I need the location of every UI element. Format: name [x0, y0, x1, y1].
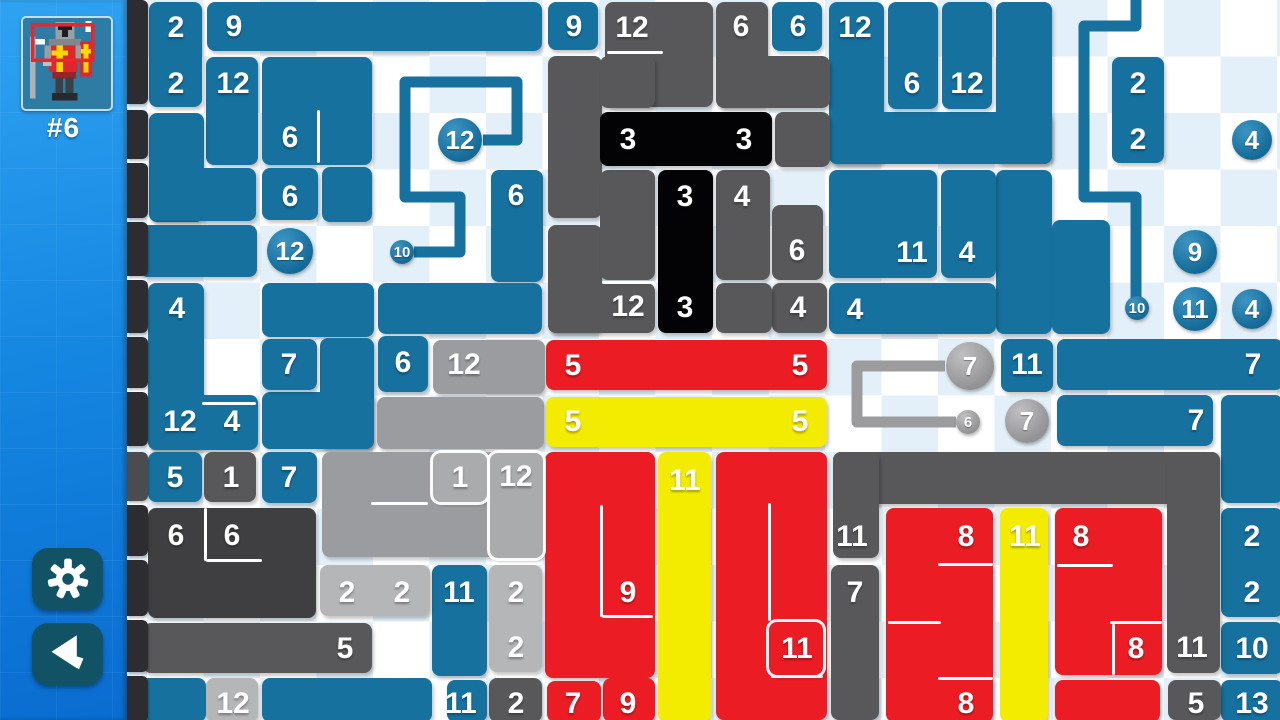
piece-6-6-snake[interactable]	[378, 283, 542, 334]
piece-number: 11	[669, 466, 701, 496]
edge-piece	[127, 392, 148, 446]
piece-number: 4	[169, 294, 186, 324]
back-button[interactable]	[32, 623, 103, 685]
piece-number: 7	[1245, 350, 1262, 380]
piece-number: 7	[281, 350, 298, 380]
piece-number: 3	[620, 125, 637, 155]
piece-number: 6	[168, 521, 185, 551]
piece-groove	[206, 559, 262, 562]
edge-piece	[127, 222, 148, 276]
piece-12-snake[interactable]	[377, 397, 544, 449]
piece-number: 6	[395, 348, 412, 378]
piece-groove	[938, 563, 993, 566]
piece-number: 6	[790, 12, 807, 42]
piece-number: 5	[565, 407, 582, 437]
piece-number: 6	[224, 521, 241, 551]
piece-number: 2	[339, 578, 356, 608]
piece-mass[interactable]	[262, 392, 374, 449]
node-circle[interactable]: 7	[946, 342, 994, 390]
node-circle[interactable]: 10	[390, 240, 414, 264]
piece-number: 8	[958, 522, 975, 552]
piece-number: 6	[508, 181, 525, 211]
edge-piece	[127, 505, 148, 556]
piece-number: 2	[1244, 578, 1261, 608]
piece-number: 2	[1130, 69, 1147, 99]
piece-number: 4	[790, 293, 807, 323]
piece-number: 11	[1176, 633, 1208, 663]
piece-number: 2	[1130, 125, 1147, 155]
edge-piece	[127, 337, 148, 388]
piece-number: 8	[958, 689, 975, 719]
node-circle[interactable]: 4	[1232, 289, 1272, 329]
piece-col-gray[interactable]	[548, 56, 602, 218]
piece-groove	[602, 615, 653, 618]
node-circle[interactable]: 4	[1232, 120, 1272, 160]
piece-groove	[1057, 564, 1113, 567]
piece-groove	[204, 508, 207, 561]
piece-groove	[607, 51, 663, 54]
piece-6-snake[interactable]	[322, 167, 372, 222]
edge-piece	[127, 676, 148, 720]
node-circle[interactable]: 9	[1173, 230, 1217, 274]
piece-number: 6	[733, 12, 750, 42]
piece-gray-c[interactable]	[775, 112, 830, 167]
node-circle[interactable]: 6	[956, 410, 980, 434]
piece-number: 9	[566, 12, 583, 42]
piece-number: 7	[281, 463, 298, 493]
piece-number: 2	[1244, 522, 1261, 552]
edge-piece	[127, 560, 148, 616]
piece-number: 3	[736, 125, 753, 155]
piece-8-block2[interactable]	[1055, 508, 1162, 675]
piece-number: 11	[896, 238, 928, 268]
piece-4-gray2[interactable]	[716, 283, 772, 333]
piece-number: 6	[904, 69, 921, 99]
piece-number: 2	[508, 578, 525, 608]
piece-number: 12	[447, 350, 480, 380]
node-circle[interactable]: 7	[1005, 399, 1049, 443]
piece-l-left[interactable]	[149, 168, 256, 221]
node-circle[interactable]: 10	[1125, 296, 1149, 320]
piece-number: 12	[838, 13, 871, 43]
piece-mass[interactable]	[262, 283, 374, 337]
piece-8-block2[interactable]	[1055, 680, 1160, 720]
sidebar: #6	[0, 0, 127, 720]
piece-number: 1	[223, 463, 240, 493]
piece-5-5-yellow[interactable]	[546, 397, 827, 447]
piece-number: 12	[499, 462, 532, 492]
piece-number: 4	[734, 182, 751, 212]
piece-groove	[768, 503, 771, 621]
piece-number: 11	[1011, 350, 1043, 380]
piece-u-big[interactable]	[833, 452, 1219, 504]
edge-piece	[127, 280, 148, 333]
piece-number: 10	[1235, 634, 1268, 664]
piece-number: 7	[1188, 406, 1205, 436]
node-circle[interactable]: 12	[438, 118, 482, 162]
piece-number: 11	[836, 522, 868, 552]
piece-number: 12	[615, 13, 648, 43]
piece-11-mass[interactable]	[716, 452, 827, 720]
knight-pixel-icon	[21, 16, 113, 111]
piece-number: 2	[394, 578, 411, 608]
piece-number: 13	[1235, 689, 1268, 719]
piece-number: 5	[792, 351, 809, 381]
piece-number: 9	[620, 578, 637, 608]
piece-number: 9	[620, 689, 637, 719]
piece-gray-a[interactable]	[600, 56, 655, 108]
piece-groove	[600, 505, 603, 617]
piece-gray-b[interactable]	[600, 170, 655, 280]
piece-number: 12	[611, 292, 644, 322]
piece-number: 12	[216, 689, 249, 719]
piece-number: 11	[443, 578, 475, 608]
piece-number: 12	[216, 69, 249, 99]
piece-5-5-red[interactable]	[546, 340, 827, 390]
piece-number: 12	[950, 69, 983, 99]
piece-number: 2	[168, 69, 185, 99]
piece-number: 12	[163, 407, 196, 437]
piece-block[interactable]	[140, 225, 257, 277]
back-arrow-icon	[46, 632, 90, 676]
piece-9-bar[interactable]	[207, 2, 542, 51]
piece-bar-a[interactable]	[140, 678, 206, 720]
piece-groove	[317, 110, 320, 163]
node-circle[interactable]: 11	[1173, 287, 1217, 331]
piece-12-u[interactable]	[829, 112, 1052, 164]
node-circle[interactable]: 12	[267, 228, 313, 274]
piece-number: 7	[565, 689, 582, 719]
piece-step[interactable]	[1052, 220, 1110, 334]
piece-groove	[938, 677, 993, 680]
snake-path	[857, 366, 956, 422]
piece-groove	[771, 675, 823, 678]
piece-number: 6	[282, 123, 299, 153]
piece-number: 4	[224, 407, 241, 437]
edge-piece	[127, 110, 148, 159]
piece-number: 1	[452, 463, 469, 493]
piece-number: 7	[847, 578, 864, 608]
piece-number: 8	[1073, 522, 1090, 552]
piece-bar-b[interactable]	[262, 678, 432, 720]
piece-number: 5	[1188, 689, 1205, 719]
piece-number: 4	[847, 295, 864, 325]
settings-button[interactable]	[32, 548, 103, 610]
piece-number: 8	[1128, 634, 1145, 664]
edge-piece	[127, 620, 148, 672]
piece-number: 4	[959, 238, 976, 268]
piece-2-2-bar[interactable]	[320, 565, 430, 616]
piece-groove	[602, 281, 655, 284]
piece-number: 5	[337, 634, 354, 664]
piece-number: 3	[677, 293, 694, 323]
gear-icon	[46, 557, 90, 601]
piece-groove	[888, 621, 941, 624]
piece-number: 5	[167, 463, 184, 493]
piece-number: 6	[789, 236, 806, 266]
piece-step[interactable]	[996, 170, 1052, 334]
piece-number: 6	[282, 182, 299, 212]
edge-piece	[127, 163, 148, 218]
level-label: #6	[0, 112, 127, 144]
piece-number: 5	[792, 407, 809, 437]
piece-number: 11	[781, 634, 813, 664]
piece-number: 2	[508, 633, 525, 663]
piece-number: 11	[1009, 522, 1041, 552]
piece-number: 2	[168, 13, 185, 43]
piece-groove	[371, 502, 428, 505]
piece-number: 5	[565, 351, 582, 381]
piece-groove	[1112, 624, 1115, 675]
puzzle-board: 2299612612221266412457766111111441177221…	[0, 0, 1280, 720]
app-window: 2299612612221266412457766111111441177221…	[0, 0, 1280, 720]
piece-groove	[1110, 621, 1162, 624]
piece-8-block1[interactable]	[886, 508, 993, 720]
piece-col-right[interactable]	[1221, 395, 1280, 503]
edge-piece	[127, 0, 148, 104]
piece-6-gray[interactable]	[716, 56, 830, 108]
piece-number: 11	[445, 689, 477, 719]
piece-number: 3	[677, 182, 694, 212]
piece-number: 9	[226, 12, 243, 42]
edge-piece	[127, 452, 148, 501]
piece-number: 2	[508, 689, 525, 719]
